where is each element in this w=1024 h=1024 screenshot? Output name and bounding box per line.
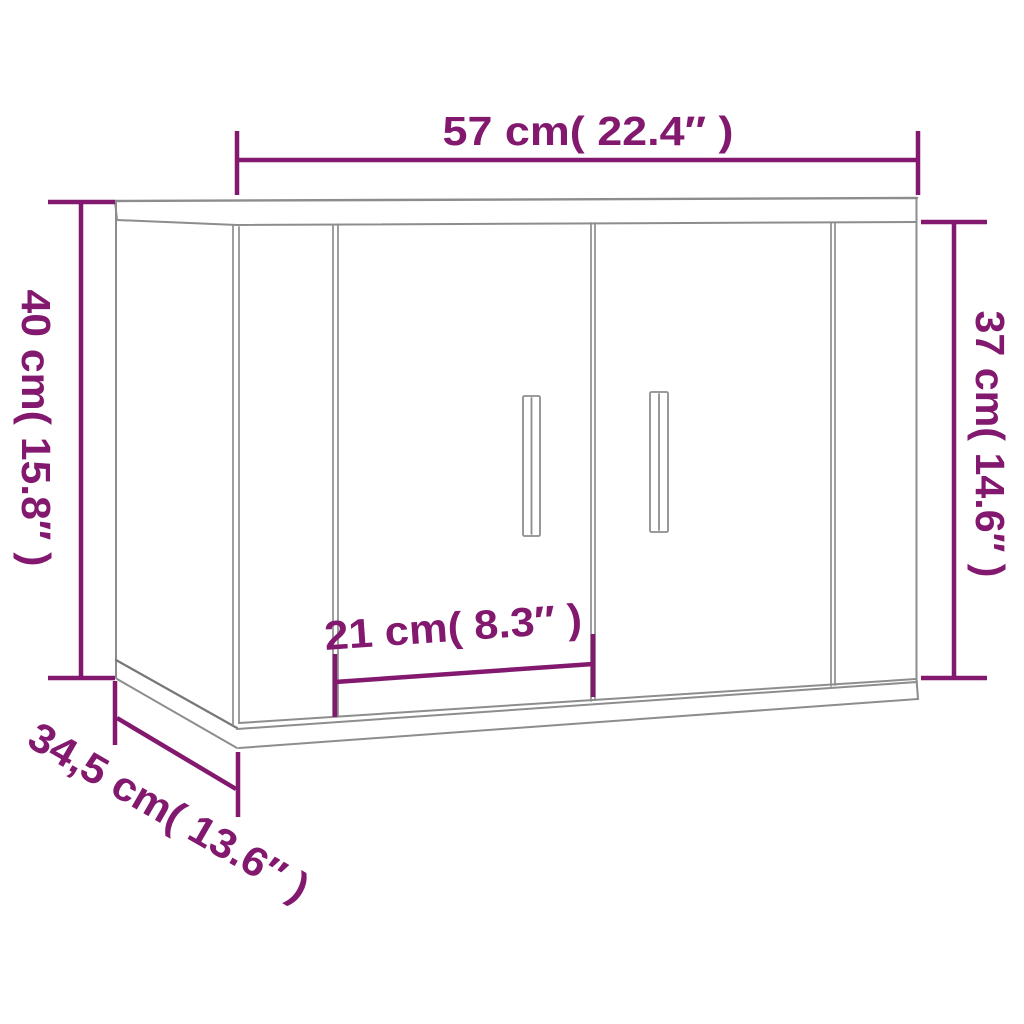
- width-dimension-label: 57 cm( 22.4″ ): [443, 108, 734, 154]
- center-door-gap: [591, 223, 595, 701]
- door-width-dimension-line: [335, 664, 593, 682]
- cabinet-top-panel: [115, 198, 917, 225]
- product-dimension-diagram: 57 cm( 22.4″ ) 40 cm( 15.8″ ) 37 cm( 14.…: [0, 0, 1024, 1024]
- dimension-annotations: 57 cm( 22.4″ ) 40 cm( 15.8″ ) 37 cm( 14.…: [13, 108, 1013, 911]
- door-width-dimension-label: 21 cm( 8.3″ ): [323, 595, 584, 659]
- width-dimension: 57 cm( 22.4″ ): [237, 108, 918, 195]
- cabinet-drawing: [115, 198, 918, 748]
- depth-dimension-label: 34,5 cm( 13.6″ ): [21, 713, 318, 911]
- front-height-dimension-label: 37 cm( 14.6″ ): [967, 311, 1013, 578]
- cabinet-left-side-panel: [116, 202, 239, 748]
- depth-dimension: 34,5 cm( 13.6″ ): [21, 681, 318, 911]
- door-width-dimension: 21 cm( 8.3″ ): [323, 595, 593, 717]
- diagram-canvas: 57 cm( 22.4″ ) 40 cm( 15.8″ ) 37 cm( 14.…: [0, 0, 1024, 1024]
- right-door-handle: [650, 392, 668, 532]
- total-height-dimension-label: 40 cm( 15.8″ ): [13, 290, 59, 567]
- cabinet-bottom-panel: [237, 679, 918, 748]
- front-height-dimension: 37 cm( 14.6″ ): [921, 222, 1013, 678]
- right-door-edge-gap: [831, 223, 835, 686]
- total-height-dimension: 40 cm( 15.8″ ): [13, 202, 115, 678]
- left-door-handle: [523, 396, 540, 536]
